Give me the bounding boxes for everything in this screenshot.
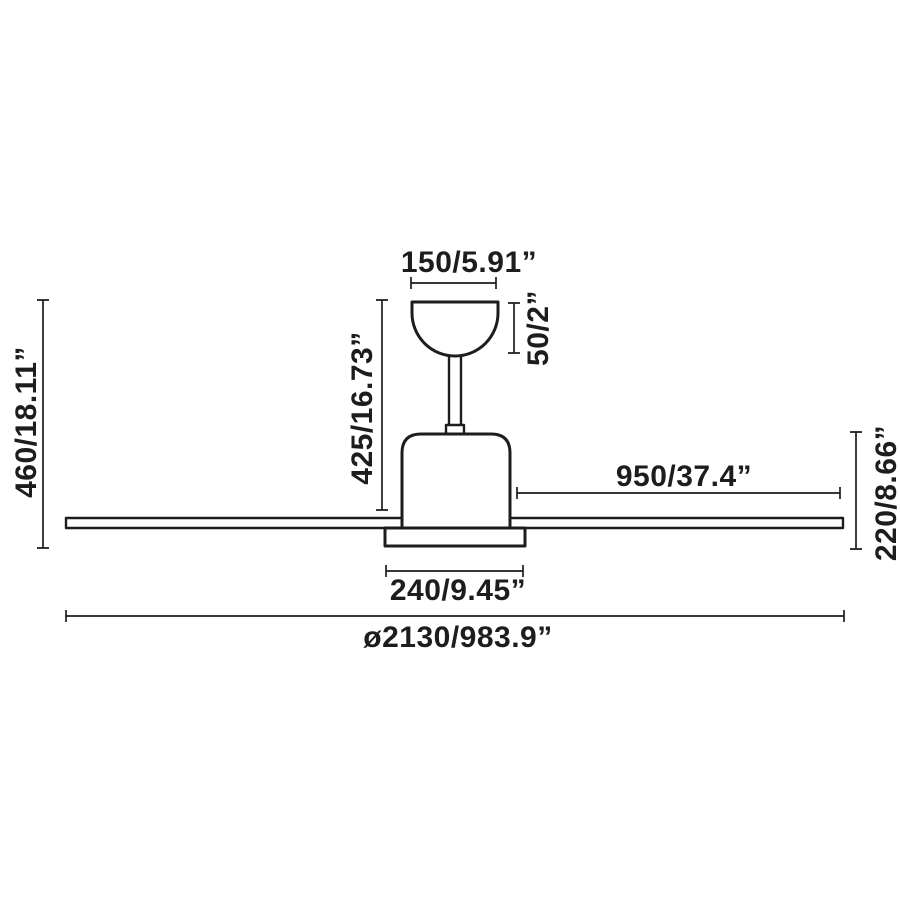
dim-body-height-label: 220/8.66” — [870, 425, 900, 561]
dim-blade-length: 950/37.4” — [517, 460, 840, 499]
dim-total-height: 460/18.11” — [10, 300, 49, 548]
fan-drawing — [66, 302, 843, 546]
dim-body-width-label: 240/9.45” — [390, 574, 526, 607]
fan-canopy — [412, 302, 498, 356]
dim-blade-length-label: 950/37.4” — [616, 460, 752, 493]
dim-drop-height-label: 425/16.73” — [346, 331, 379, 484]
dim-canopy-width: 150/5.91” — [401, 246, 537, 289]
fan-blade-left — [66, 518, 402, 528]
dim-canopy-width-label: 150/5.91” — [401, 246, 537, 279]
dim-sweep-diameter: ø2130/983.9” — [66, 610, 844, 654]
dim-drop-height: 425/16.73” — [346, 300, 388, 510]
dim-body-height-line — [850, 432, 862, 549]
dim-sweep-diameter-label: ø2130/983.9” — [363, 621, 552, 654]
fan-bottom-plate — [385, 528, 525, 546]
fan-downrod — [449, 355, 461, 426]
diagram-canvas: 150/5.91” 50/2” 425/16.73” 460/18.11” 95… — [0, 0, 900, 900]
fan-blade-right — [510, 518, 843, 528]
fan-motor-housing — [402, 434, 510, 529]
dim-body-height: 220/8.66” — [850, 425, 900, 561]
dim-canopy-height-line — [508, 303, 520, 353]
dim-canopy-height: 50/2” — [508, 290, 555, 366]
fan-dimension-diagram: 150/5.91” 50/2” 425/16.73” 460/18.11” 95… — [0, 0, 900, 900]
dim-total-height-label: 460/18.11” — [10, 346, 43, 498]
dim-canopy-height-label: 50/2” — [522, 290, 555, 366]
dim-body-width: 240/9.45” — [386, 565, 526, 607]
